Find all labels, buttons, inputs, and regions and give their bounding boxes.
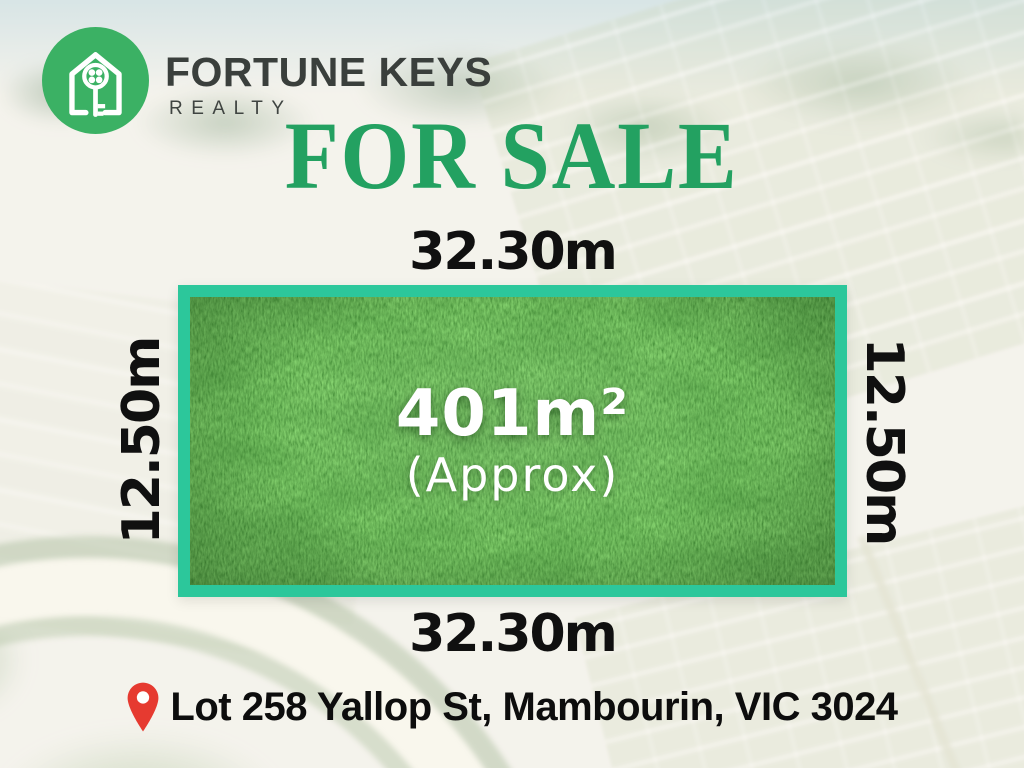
dimension-top: 32.30m	[178, 222, 847, 282]
address-row: Lot 258 Yallop St, Mambourin, VIC 3024	[0, 681, 1024, 733]
dimension-left: 12.50m	[112, 338, 172, 545]
plot-area-block: 401m² (Approx)	[190, 297, 835, 585]
dimension-bottom: 32.30m	[178, 604, 847, 664]
map-pin-icon	[126, 681, 160, 733]
for-sale-poster: FORTUNE KEYS REALTY FOR SALE 32.30m 12.5…	[0, 0, 1024, 768]
plot-area-note: (Approx)	[406, 450, 620, 501]
dimension-right: 12.50m	[854, 338, 914, 545]
land-plot: 401m² (Approx)	[178, 285, 847, 597]
for-sale-headline-text: FOR SALE	[285, 108, 739, 204]
brand-name: FORTUNE KEYS	[165, 52, 492, 93]
background-sky-strip	[0, 0, 1024, 95]
address-text: Lot 258 Yallop St, Mambourin, VIC 3024	[170, 685, 897, 730]
plot-area-label: 401m²	[396, 381, 629, 448]
for-sale-headline: FOR SALE	[0, 108, 1024, 204]
